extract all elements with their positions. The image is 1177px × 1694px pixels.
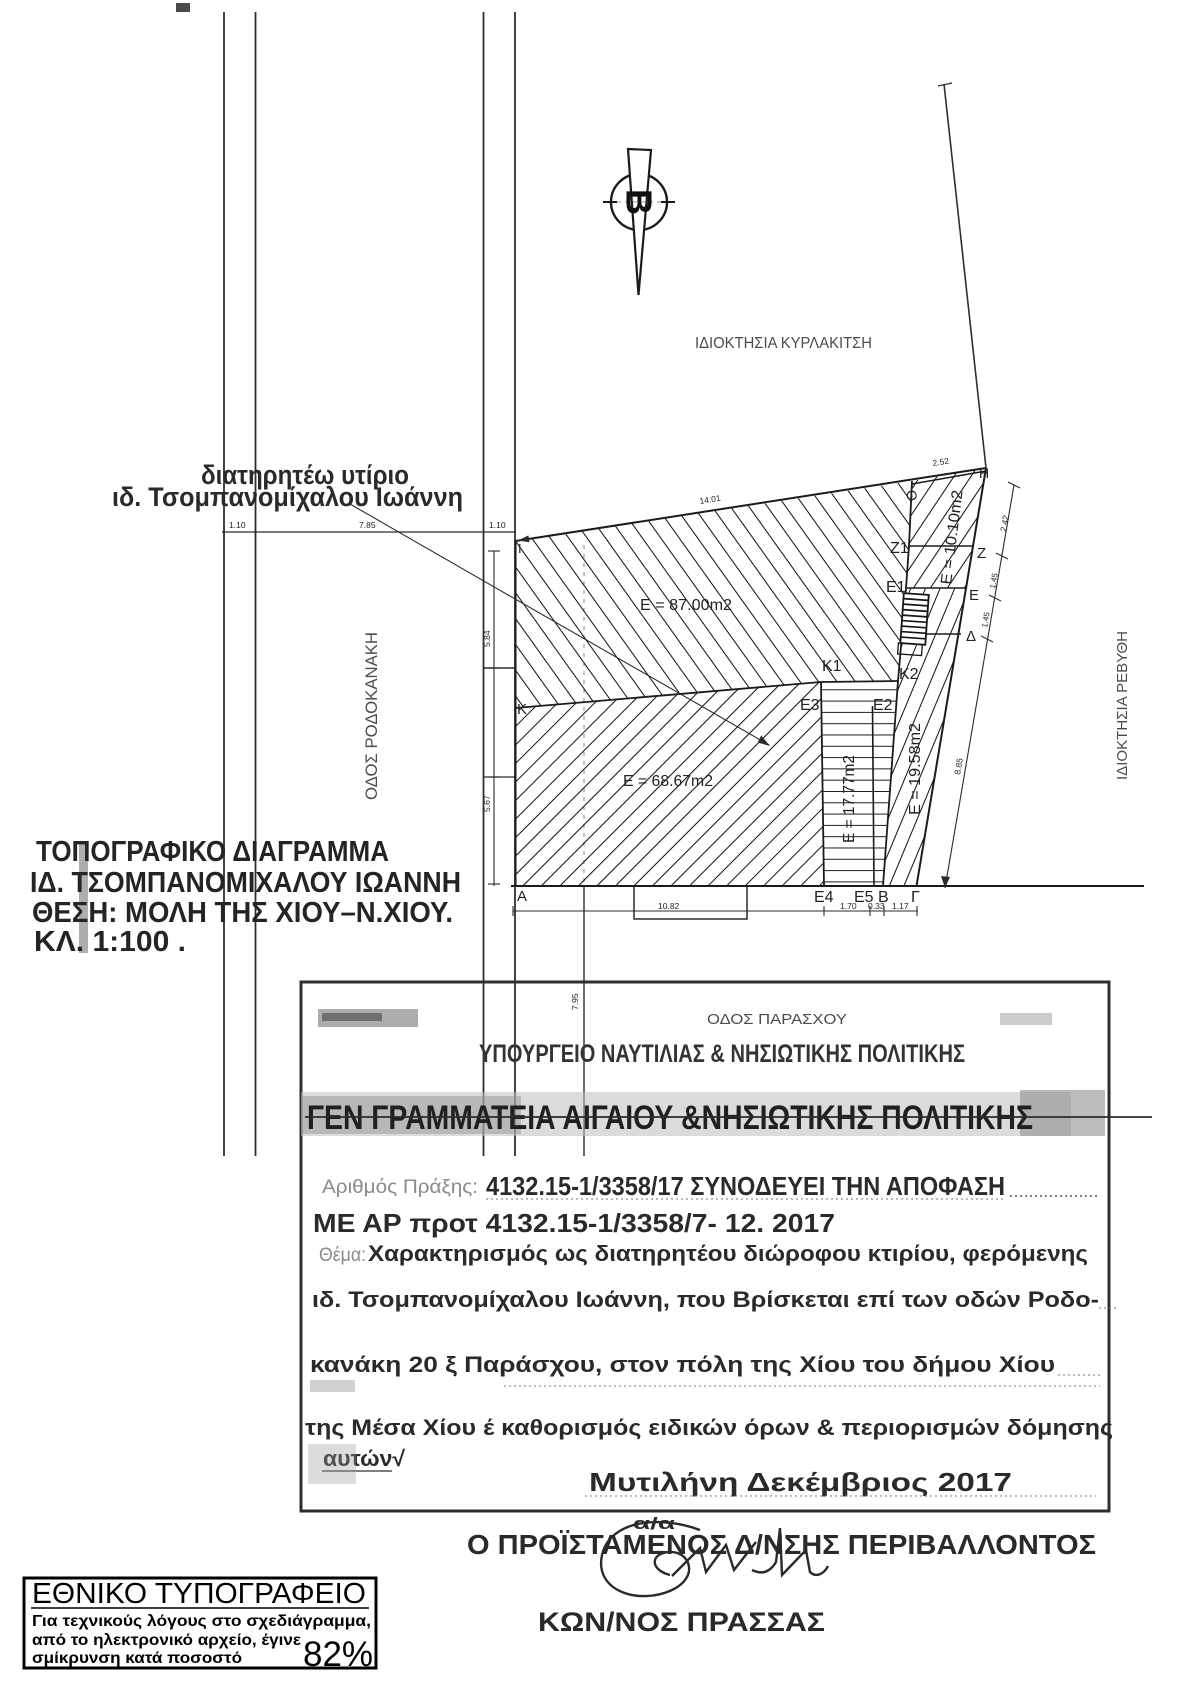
svg-text:ΚΩΝ/ΝΟΣ ΠΡΑΣΣΑΣ: ΚΩΝ/ΝΟΣ ΠΡΑΣΣΑΣ <box>538 1607 825 1637</box>
svg-text:Χαρακτηρισμός ως διατηρητέου δ: Χαρακτηρισμός ως διατηρητέου διώροφου κτ… <box>368 1241 1088 1266</box>
svg-text:Δ: Δ <box>966 628 976 645</box>
svg-text:ΘΕΣΗ: ΜΟΛΗ ΤΗΣ ΧΙΟΥ–Ν.ΧΙΟΥ.: ΘΕΣΗ: ΜΟΛΗ ΤΗΣ ΧΙΟΥ–Ν.ΧΙΟΥ. <box>32 897 453 929</box>
svg-text:ΕΘΝΙΚΟ ΤΥΠΟΓΡΑΦΕΙΟ: ΕΘΝΙΚΟ ΤΥΠΟΓΡΑΦΕΙΟ <box>32 1578 366 1610</box>
svg-text:1.10: 1.10 <box>489 520 506 530</box>
svg-text:7.95: 7.95 <box>570 993 580 1010</box>
svg-text:ΜΕ ΑΡ προτ 4132.15-1/3358/7-: ΜΕ ΑΡ προτ 4132.15-1/3358/7- 12. 2017 <box>313 1208 835 1238</box>
svg-text:1.45: 1.45 <box>988 572 1000 589</box>
svg-text:10.82: 10.82 <box>658 901 680 911</box>
svg-text:E2: E2 <box>873 697 893 714</box>
svg-text:K: K <box>517 701 527 718</box>
svg-text:K1: K1 <box>822 658 842 675</box>
svg-text:K2: K2 <box>899 666 919 683</box>
svg-text:Z1: Z1 <box>890 540 909 557</box>
svg-text:E4: E4 <box>814 889 834 906</box>
svg-text:1.70: 1.70 <box>840 901 857 911</box>
svg-text:ΙΔΙΟΚΤΗΣΙΑ ΚΥΡΛΑΚΙΤΣΗ: ΙΔΙΟΚΤΗΣΙΑ ΚΥΡΛΑΚΙΤΣΗ <box>695 335 872 352</box>
svg-text:ΥΠΟΥΡΓΕΙΟ ΝΑΥΤΙΛΙΑΣ & ΝΗΣΙΩΤΙΚ: ΥΠΟΥΡΓΕΙΟ ΝΑΥΤΙΛΙΑΣ & ΝΗΣΙΩΤΙΚΗΣ ΠΟΛΙΤΙΚ… <box>479 1040 965 1068</box>
svg-text:4132.15-1/3358/17 ΣΥΝΟΔΕΥΕΙ ΤΗ: 4132.15-1/3358/17 ΣΥΝΟΔΕΥΕΙ ΤΗΝ ΑΠΟΦΑΣΗ <box>486 1171 1005 1201</box>
svg-text:E1: E1 <box>886 579 906 596</box>
svg-text:2.52: 2.52 <box>932 456 950 468</box>
svg-text:Αριθμός Πράξης:: Αριθμός Πράξης: <box>322 1177 478 1198</box>
svg-text:A: A <box>517 888 527 905</box>
svg-text:E: E <box>969 587 979 604</box>
svg-text:I: I <box>518 541 522 556</box>
svg-text:σμίκρυνση κατά ποσοστό: σμίκρυνση κατά ποσοστό <box>32 1650 242 1667</box>
svg-text:5.67: 5.67 <box>482 795 492 812</box>
svg-text:E = 68.67m2: E = 68.67m2 <box>623 773 713 790</box>
svg-text:7.85: 7.85 <box>359 520 376 530</box>
svg-text:ιδ. Τσομπανομίχαλου Ιωάννη: ιδ. Τσομπανομίχαλου Ιωάννη <box>112 482 463 512</box>
svg-text:από το ηλεκτρονικό αρχείο, έγι: από το ηλεκτρονικό αρχείο, έγινε <box>32 1632 301 1649</box>
svg-text:E = 17.77m2: E = 17.77m2 <box>841 755 858 843</box>
svg-text:Z: Z <box>977 545 986 562</box>
svg-text:Γ: Γ <box>911 889 920 906</box>
svg-text:E3: E3 <box>800 697 820 714</box>
svg-text:ΓΕΝ ΓΡΑΜΜΑΤΕΙΑ ΑΙΓΑΙΟΥ &ΝΗΣΙΩΤ: ΓΕΝ ΓΡΑΜΜΑΤΕΙΑ ΑΙΓΑΙΟΥ &ΝΗΣΙΩΤΙΚΗΣ ΠΟΛΙΤ… <box>307 1099 1033 1137</box>
svg-text:Θέμα:: Θέμα: <box>319 1245 366 1266</box>
svg-text:0.33: 0.33 <box>868 901 885 911</box>
svg-text:1.10: 1.10 <box>229 520 246 530</box>
svg-text:H: H <box>979 465 989 481</box>
svg-text:Μυτιλήνη Δεκέμβριος 2017: Μυτιλήνη Δεκέμβριος 2017 <box>589 1467 1012 1497</box>
svg-text:ΟΔΟΣ ΠΑΡΑΣΧΟΥ: ΟΔΟΣ ΠΑΡΑΣΧΟΥ <box>707 1011 847 1028</box>
svg-text:8.85: 8.85 <box>952 757 965 775</box>
svg-text:82%: 82% <box>303 1635 373 1674</box>
svg-text:ΟΔΟΣ ΡΟΔΟΚΑΝΑΚΗ: ΟΔΟΣ ΡΟΔΟΚΑΝΑΚΗ <box>362 632 381 800</box>
svg-text:κανάκη 20 ξ Παράσχου, στον πόλ: κανάκη 20 ξ Παράσχου, στον πόλη της Χίου… <box>310 1352 1055 1377</box>
svg-text:14.01: 14.01 <box>699 493 722 506</box>
svg-text:ΤΟΠΟΓΡΑΦΙΚΟ ΔΙΑΓΡΑΜΜΑ: ΤΟΠΟΓΡΑΦΙΚΟ ΔΙΑΓΡΑΜΜΑ <box>36 836 389 868</box>
svg-text:E = 19.58m2: E = 19.58m2 <box>907 723 924 815</box>
svg-text:ΙΔ. ΤΣΟΜΠΑΝΟΜΙΧΑΛΟΥ ΙΩΑΝΝΗ: ΙΔ. ΤΣΟΜΠΑΝΟΜΙΧΑΛΟΥ ΙΩΑΝΝΗ <box>30 867 461 899</box>
svg-text:ΚΛ. 1:100 .: ΚΛ. 1:100 . <box>34 926 186 958</box>
svg-text:B: B <box>619 189 660 215</box>
svg-text:2.42: 2.42 <box>998 514 1011 532</box>
svg-text:5.84: 5.84 <box>482 630 492 647</box>
svg-text:Για τεχνικούς λόγους στο σχεδι: Για τεχνικούς λόγους στο σχεδιάγραμμα, <box>32 1613 371 1630</box>
svg-text:1.17: 1.17 <box>892 901 909 911</box>
svg-text:της Μέσα Χίου έ καθορισμός ειδ: της Μέσα Χίου έ καθορισμός ειδικών όρων … <box>305 1415 1113 1440</box>
svg-text:ιδ. Τσομπανομίχαλου Ιωάννη, πο: ιδ. Τσομπανομίχαλου Ιωάννη, που Βρίσκετα… <box>312 1287 1099 1312</box>
svg-text:ΙΔΙΟΚΤΗΣΙΑ ΡΕΒΥΘΗ: ΙΔΙΟΚΤΗΣΙΑ ΡΕΒΥΘΗ <box>1114 631 1131 780</box>
svg-text:E = 87.00m2: E = 87.00m2 <box>640 597 732 614</box>
